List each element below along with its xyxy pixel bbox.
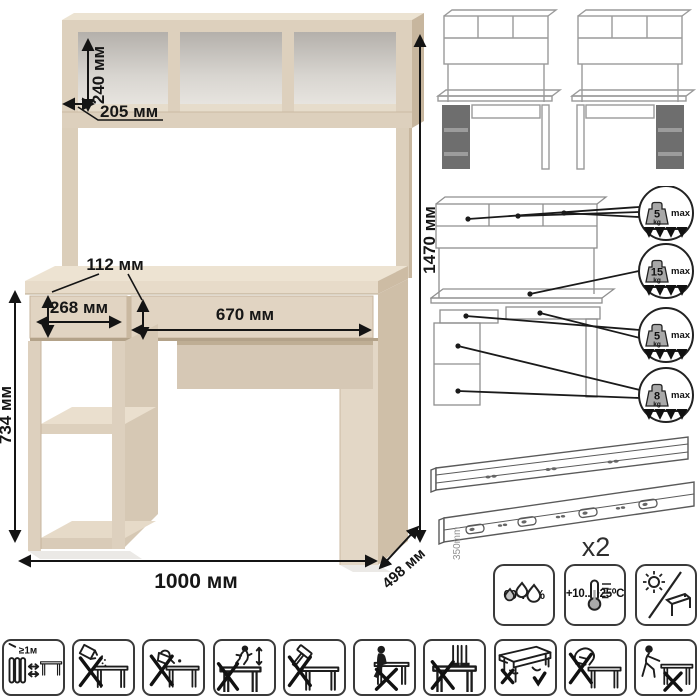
pedestal-right-panel [112,341,125,549]
warning-no-hot-liquids [142,639,205,696]
no-direct-sunlight-icon [641,570,691,620]
warning-no-dragging [634,639,697,696]
load-qualifier: max [671,208,691,219]
load-unit: kg [653,341,661,348]
min-distance-label: ≥1м [18,645,36,656]
shadow [340,565,391,572]
slide-rail-back [431,437,688,492]
sunlight-tile [635,564,697,626]
keep-1m-from-heat-icon: ≥1м [5,643,63,692]
right-side-panel [378,279,408,565]
dim-drawer-height-label: 112 мм [86,255,143,274]
no-abrasive-powder-icon [75,643,133,692]
dim-left-drawer-width-label: 268 мм [50,298,108,317]
modesty-panel [177,341,373,389]
no-sitting-icon [356,643,414,692]
warning-lift-correctly [494,639,557,696]
load-badge-desktop: 15 kg max [639,244,693,298]
climate-conditions: 60-70% +10...+25⁰C [493,564,697,626]
load-qualifier: max [671,390,691,401]
lift-correctly-icon [496,643,554,692]
load-badge-shelves: 5 kg max [639,186,693,240]
load-badge-drawers: 5 kg max [639,308,693,362]
dim-total-width-label: 1000 мм [154,570,238,593]
warning-no-jumping [213,639,276,696]
slide-length-label: 350mm [452,527,463,560]
person-icon [377,646,385,654]
variant-thumbnails [430,4,699,186]
up-down-arrow-icon [257,648,262,665]
no-hammering-icon [285,643,343,692]
infographic-canvas: 240 мм 205 мм 1470 мм 112 мм 268 мм 670 … [0,0,699,700]
dim-shelf-depth-label: 205 мм [100,102,158,121]
warning-no-sitting [353,639,416,696]
load-diagram-desk [431,197,614,405]
radiator-icon [9,658,25,683]
drawer-slides: 350mm x2 [430,434,699,564]
pedestal [28,324,158,551]
warning-no-lifting-by-top [564,639,627,696]
table-icon [589,668,621,688]
load-qualifier: max [671,266,691,277]
hutch-cubby-2 [180,32,282,112]
slide-quantity-label: x2 [582,532,611,562]
humidity-tile: 60-70% [493,564,555,626]
thermometer-icon [575,579,615,611]
no-dragging-icon [636,643,694,692]
desktop [25,266,408,281]
prohibition-cross [376,669,396,689]
no-hot-liquids-icon [145,643,203,692]
humidity-drops-icon [501,580,547,610]
check-mark [534,673,544,683]
load-unit: kg [653,219,661,226]
hutch [62,13,424,278]
shadow [28,551,142,559]
variant-pedestal-left [438,10,560,169]
dim-right-drawer-width-label: 670 мм [216,305,274,324]
table-icon [40,662,61,675]
legs-icon [453,646,466,663]
warning-no-standing [423,639,486,696]
no-jumping-icon [215,643,273,692]
load-unit: kg [653,401,661,408]
load-unit: kg [653,277,661,284]
warning-pictograms: ≥1м [2,639,697,696]
pedestal-left-panel [28,341,41,551]
warning-no-hammering [283,639,346,696]
variant-pedestal-right [572,10,694,169]
warning-no-abrasive-powder [72,639,135,696]
dim-desk-height-label: 734 мм [0,386,15,444]
load-limit-diagram: 5 kg max 15 kg max 5 kg ma [430,186,699,436]
prohibition-cross [502,670,512,682]
load-qualifier: max [671,330,691,341]
hutch-cubby-3 [294,32,396,112]
slide-rail-front [439,482,694,544]
person-icon [646,645,654,653]
temperature-tile: +10...+25⁰C [564,564,626,626]
warning-keep-1m-from-heat: ≥1м [2,639,65,696]
hutch-left-upright [62,128,78,274]
no-lifting-by-top-icon [566,643,624,692]
person-icon [242,645,248,651]
load-badge-pedestal: 8 kg max [639,368,693,422]
no-standing-icon [426,643,484,692]
main-dimension-diagram: 240 мм 205 мм 1470 мм 112 мм 268 мм 670 … [0,0,446,618]
table-icon [303,668,339,690]
dim-shelf-height-label: 240 мм [89,46,108,104]
